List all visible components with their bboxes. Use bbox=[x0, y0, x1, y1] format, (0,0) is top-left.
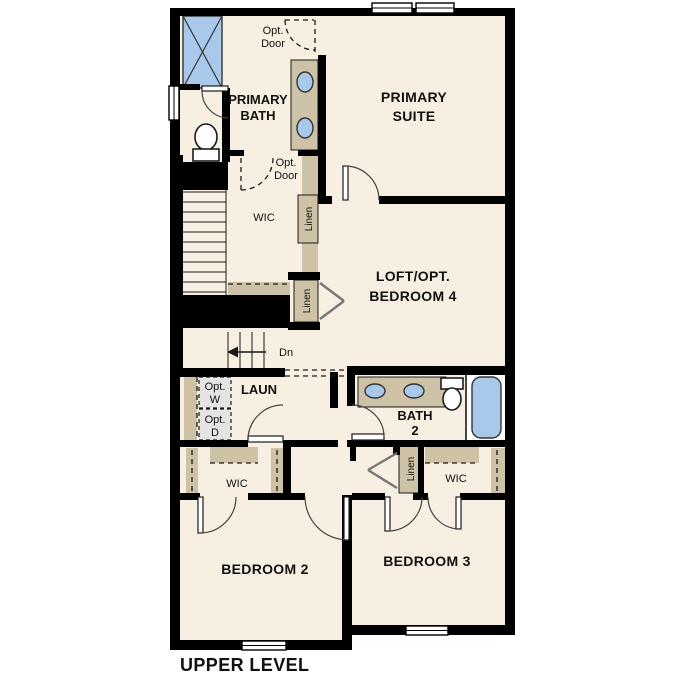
label-bedroom2: BEDROOM 2 bbox=[221, 561, 309, 577]
label-stairs-down: Dn bbox=[279, 347, 293, 359]
window-toilet-room bbox=[169, 86, 179, 120]
window-bedroom3 bbox=[406, 626, 448, 635]
label-bath2-line2: 2 bbox=[411, 423, 418, 438]
label-opt-door-top-line2: Door bbox=[261, 38, 285, 50]
label-wic-bedroom3: WIC bbox=[445, 473, 466, 485]
label-opt-dryer-line2: D bbox=[211, 427, 219, 439]
toilet-primary bbox=[193, 124, 219, 161]
label-opt-washer-line1: Opt. bbox=[205, 381, 226, 393]
bathtub bbox=[472, 377, 501, 438]
plan-title: UPPER LEVEL bbox=[180, 655, 309, 675]
label-linen-lower: Linen bbox=[406, 457, 417, 481]
label-bedroom3: BEDROOM 3 bbox=[383, 553, 471, 569]
toilet-bath2 bbox=[441, 378, 463, 410]
window-primary-suite-2 bbox=[416, 3, 454, 13]
shower bbox=[183, 16, 222, 88]
label-loft-line1: LOFT/OPT. bbox=[376, 268, 450, 284]
label-wic-bedroom2: WIC bbox=[226, 478, 247, 490]
label-opt-washer-line2: W bbox=[210, 394, 221, 406]
label-opt-door-wic-line2: Door bbox=[274, 170, 298, 182]
label-primary-bath-line1: PRIMARY bbox=[228, 92, 288, 107]
label-opt-dryer-line1: Opt. bbox=[205, 414, 226, 426]
label-opt-door-wic-line1: Opt. bbox=[276, 157, 297, 169]
label-bath2-line1: BATH bbox=[397, 408, 432, 423]
floor-plan-page: PRIMARY BATH PRIMARY SUITE LOFT/OPT. BED… bbox=[0, 0, 687, 687]
label-wic-primary: WIC bbox=[253, 212, 274, 224]
sink-primary-2 bbox=[297, 118, 313, 138]
window-primary-suite-1 bbox=[372, 3, 412, 13]
label-primary-suite-line2: SUITE bbox=[393, 108, 436, 124]
label-linen-upper: Linen bbox=[304, 207, 315, 231]
label-primary-suite-line1: PRIMARY bbox=[381, 89, 448, 105]
floor-plan-drawing: PRIMARY BATH PRIMARY SUITE LOFT/OPT. BED… bbox=[0, 0, 687, 687]
sink-primary-1 bbox=[297, 72, 313, 92]
label-linen-mid: Linen bbox=[302, 289, 313, 313]
label-opt-door-top-line1: Opt. bbox=[263, 25, 284, 37]
label-loft-line2: BEDROOM 4 bbox=[369, 288, 457, 304]
label-laundry: LAUN bbox=[241, 382, 277, 397]
label-primary-bath-line2: BATH bbox=[240, 108, 275, 123]
sink-bath2-2 bbox=[404, 384, 424, 398]
sink-bath2-1 bbox=[365, 384, 385, 398]
window-bedroom2 bbox=[242, 641, 286, 650]
